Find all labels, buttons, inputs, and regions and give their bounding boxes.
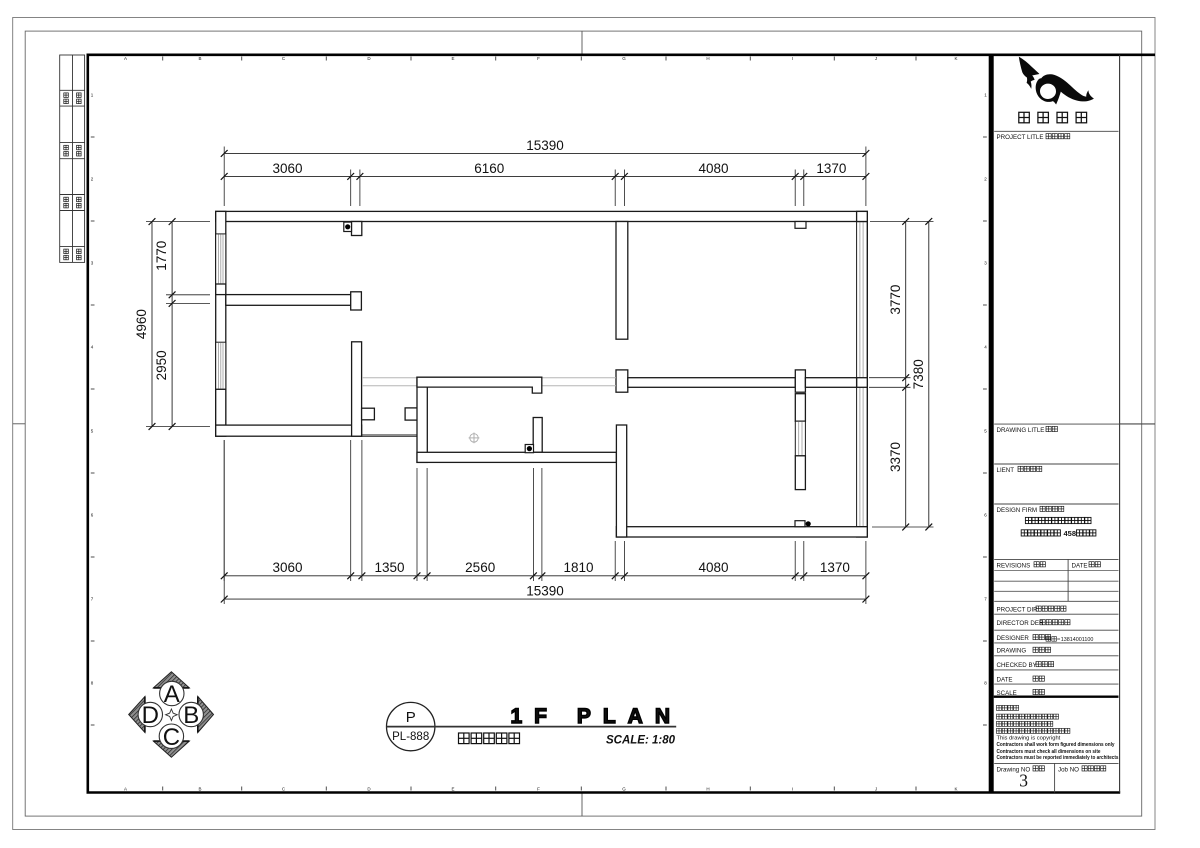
svg-text:I: I [792, 56, 793, 61]
svg-text:SCALE: 1:80: SCALE: 1:80 [606, 735, 676, 747]
svg-text:REVISIONS: REVISIONS [997, 562, 1031, 569]
svg-text:This drawing is copyright: This drawing is copyright [997, 736, 1061, 742]
svg-text:PROJECT DIR: PROJECT DIR [997, 606, 1039, 613]
svg-text:Contractors must be reported i: Contractors must be reported immediately… [997, 755, 1119, 761]
svg-text:J: J [875, 56, 877, 61]
svg-text:4080: 4080 [698, 161, 728, 176]
svg-text:1F PLAN: 1F PLAN [511, 705, 683, 728]
svg-text:A: A [124, 787, 127, 792]
svg-text:DATE: DATE [997, 676, 1013, 683]
svg-text:F: F [537, 56, 540, 61]
svg-text:1350: 1350 [374, 560, 404, 575]
svg-text:3060: 3060 [272, 161, 302, 176]
svg-text:G: G [622, 56, 626, 61]
svg-text:3770: 3770 [888, 285, 903, 315]
svg-text:A: A [164, 681, 180, 708]
svg-text:7380: 7380 [911, 359, 926, 389]
svg-text:B: B [183, 702, 199, 729]
svg-text:3060: 3060 [272, 560, 302, 575]
svg-text:E: E [451, 56, 454, 61]
svg-text:4080: 4080 [698, 560, 728, 575]
svg-text:6160: 6160 [474, 161, 504, 176]
svg-text:LIENT: LIENT [997, 467, 1015, 474]
svg-text:CHECKED BY: CHECKED BY [997, 662, 1037, 669]
svg-text:G: G [622, 787, 626, 792]
svg-text:2560: 2560 [465, 560, 495, 575]
svg-text:2950: 2950 [154, 350, 169, 380]
svg-text:1770: 1770 [154, 241, 169, 271]
svg-text:15390: 15390 [526, 138, 564, 153]
svg-text:DIRECTOR DER: DIRECTOR DER [997, 620, 1045, 627]
svg-text:E: E [451, 787, 454, 792]
svg-text:1370: 1370 [820, 560, 850, 575]
svg-text:Contractors shall work form fi: Contractors shall work form figured dime… [997, 742, 1115, 748]
svg-text:PROJECT LITLE: PROJECT LITLE [997, 134, 1044, 141]
svg-text:4960: 4960 [134, 309, 149, 339]
svg-text:I: I [792, 787, 793, 792]
svg-text:H: H [706, 787, 709, 792]
svg-text:3370: 3370 [888, 442, 903, 472]
svg-text:K: K [954, 56, 957, 61]
svg-text:DESIGNER: DESIGNER [997, 635, 1030, 642]
svg-text:B: B [198, 787, 201, 792]
svg-text:13814001100: 13814001100 [1061, 637, 1094, 643]
svg-text:DESIGN FIRM: DESIGN FIRM [997, 507, 1038, 514]
svg-text:3: 3 [1019, 771, 1028, 791]
svg-text:15390: 15390 [526, 584, 564, 599]
svg-text:B: B [198, 56, 201, 61]
svg-text:A: A [124, 56, 127, 61]
svg-text:1370: 1370 [816, 161, 846, 176]
svg-text:DRAWING: DRAWING [997, 648, 1027, 655]
svg-text:K: K [954, 787, 957, 792]
svg-text:1810: 1810 [563, 560, 593, 575]
svg-text:Contractors must check all dim: Contractors must check all dimensions on… [997, 749, 1101, 755]
svg-text:C: C [163, 724, 180, 751]
svg-text:J: J [875, 787, 877, 792]
svg-text:D: D [142, 702, 159, 729]
svg-text:Job NO: Job NO [1058, 767, 1079, 774]
svg-text:458: 458 [1064, 529, 1077, 538]
svg-text:P: P [406, 709, 416, 726]
svg-text:PL-888: PL-888 [392, 731, 429, 743]
svg-text:DRAWING LITLE: DRAWING LITLE [997, 427, 1045, 434]
svg-text:DATE: DATE [1072, 562, 1088, 569]
svg-text:F: F [537, 787, 540, 792]
svg-text:H: H [706, 56, 709, 61]
